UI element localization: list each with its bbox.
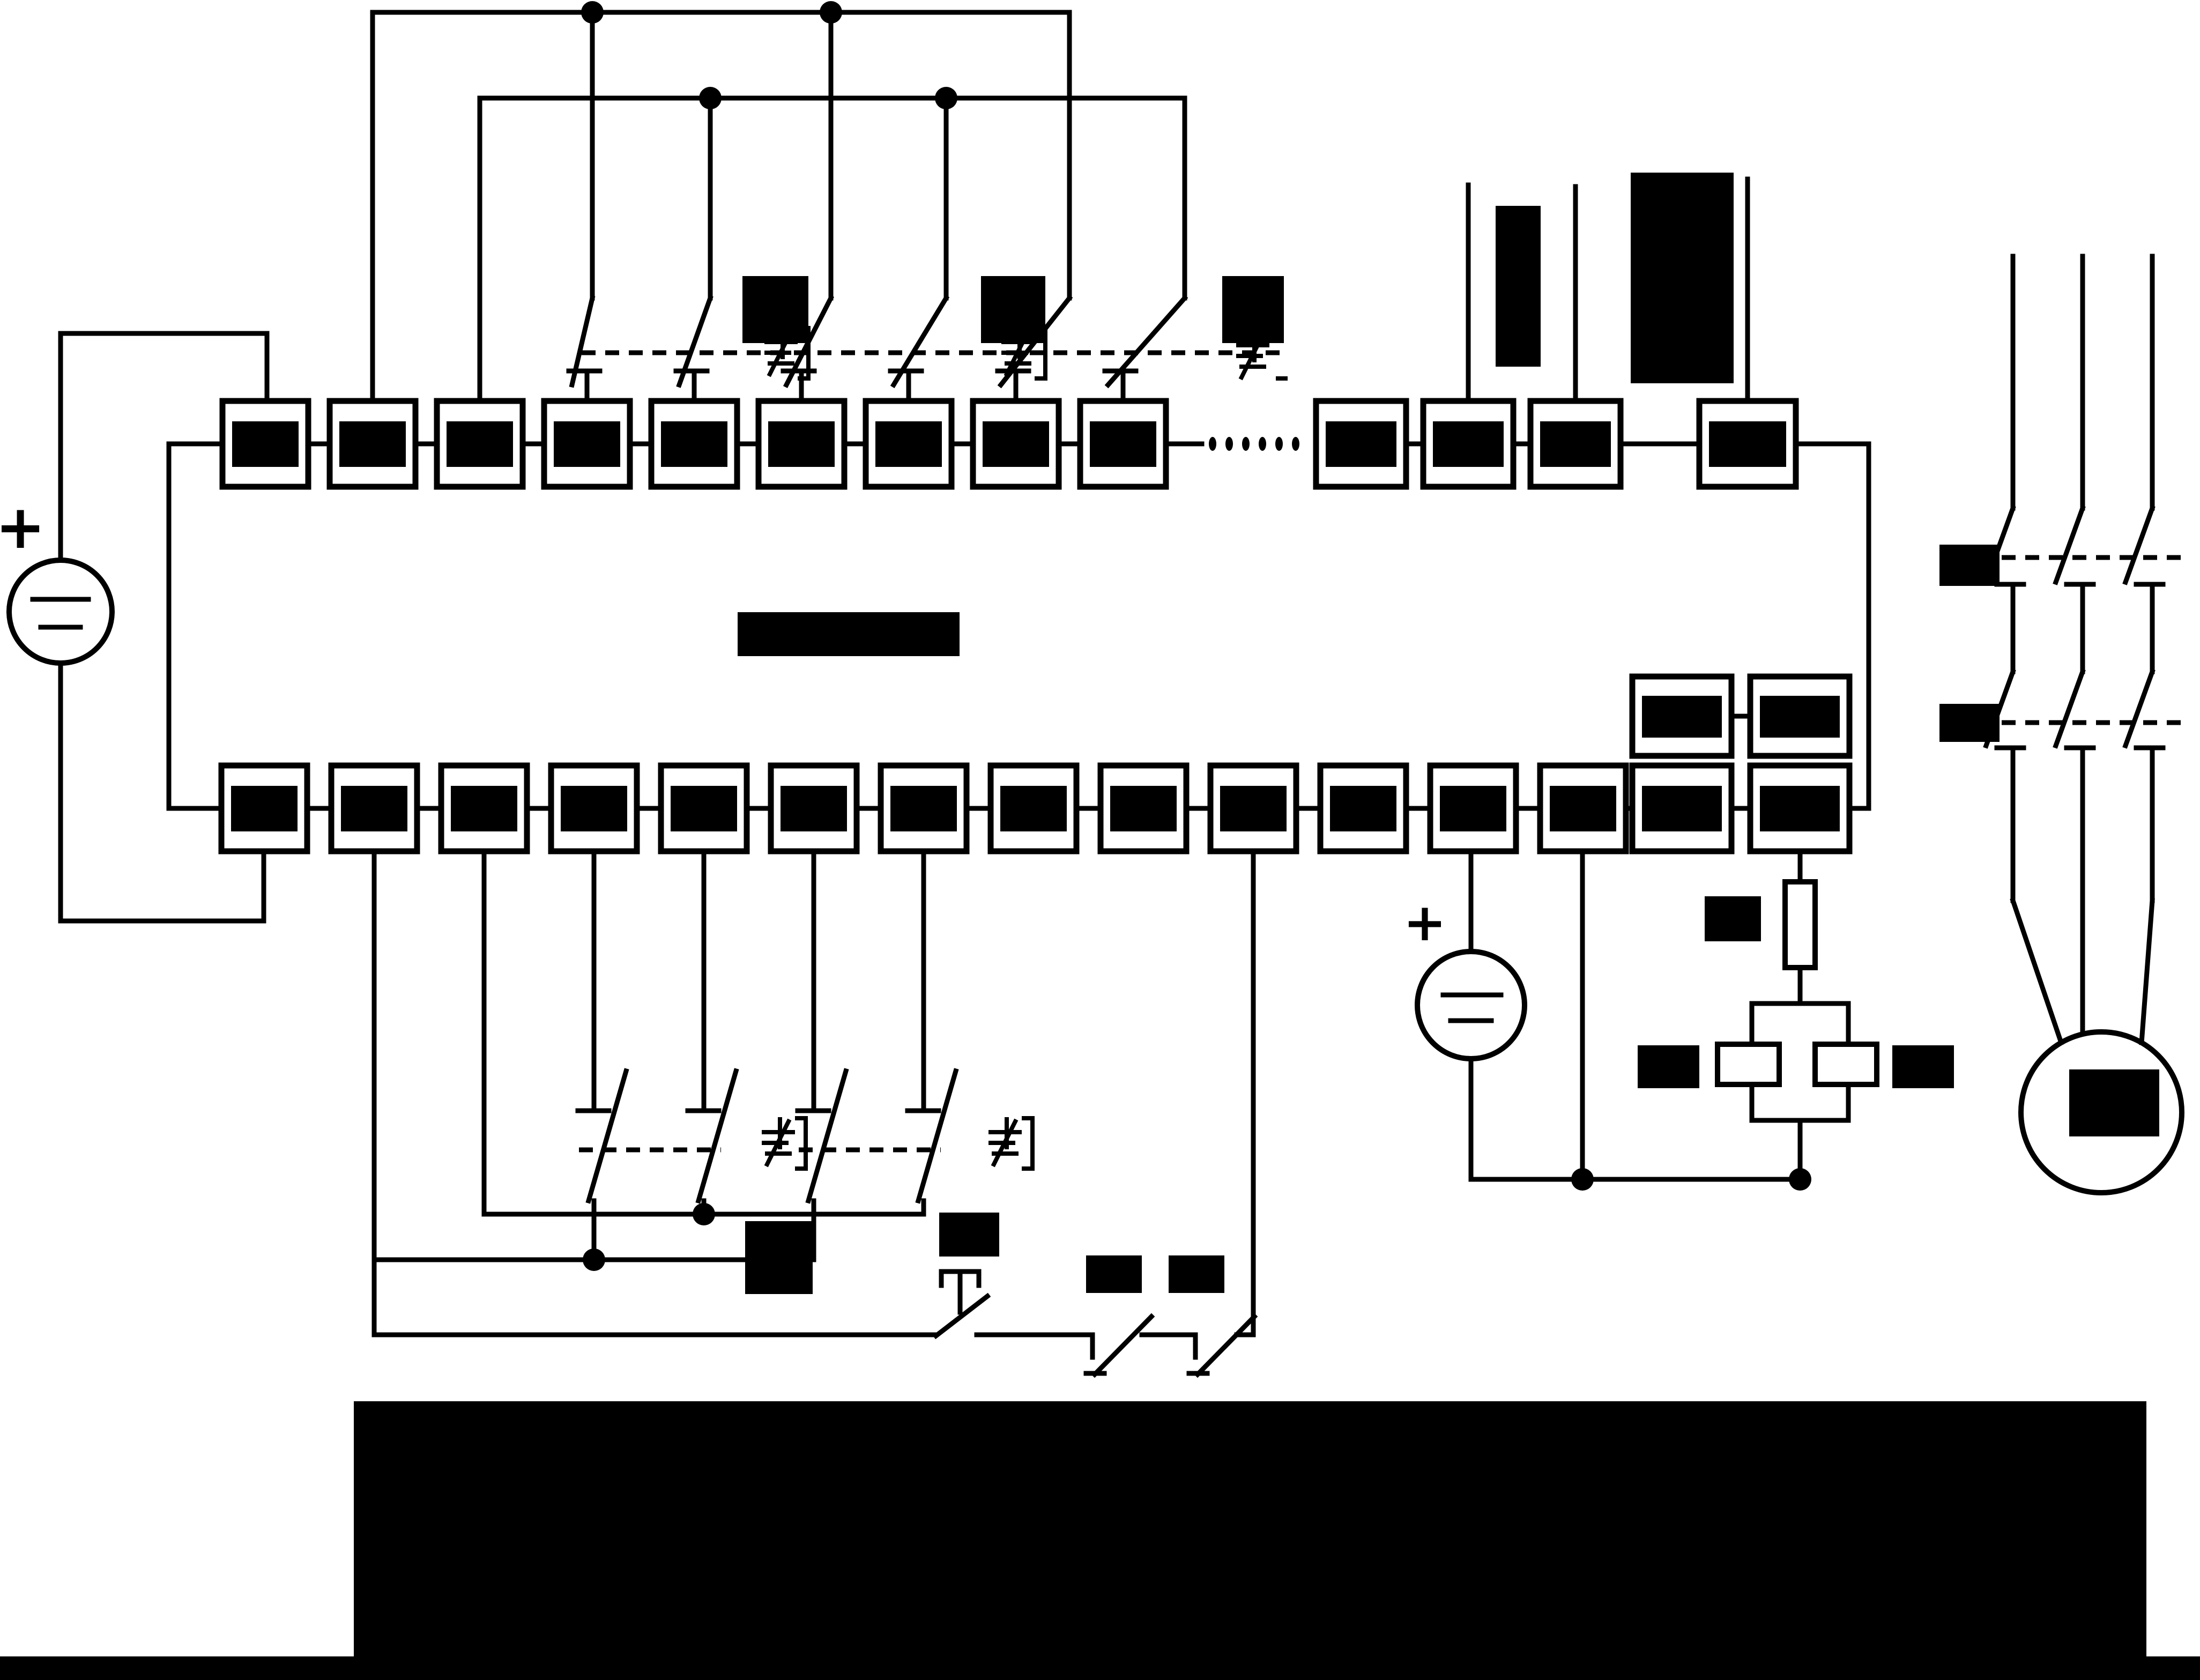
plc-model-label-redacted <box>738 612 960 656</box>
terminal-label-redacted <box>1440 786 1506 831</box>
module-bar-redacted <box>1631 173 1734 383</box>
terminal-label-redacted <box>781 786 847 831</box>
junction-dot <box>581 1 604 24</box>
contactor-contact <box>2125 508 2152 582</box>
coil-side-square <box>1718 1044 1779 1084</box>
diagram-canvas: ++ <box>0 0 2200 1680</box>
dc-source-1-plus-sign: + <box>0 493 46 562</box>
terminal-label-redacted <box>1642 786 1722 831</box>
terminal-label-redacted <box>983 421 1049 467</box>
terminal-label-redacted <box>1540 421 1611 467</box>
linkage-glyph <box>764 1118 806 1169</box>
terminal-label-redacted <box>875 421 942 467</box>
terminal-row-ellipsis-dot <box>1242 437 1250 451</box>
linkage-glyph <box>991 1118 1032 1169</box>
dc-source-2-plus-sign: + <box>1403 893 1446 953</box>
terminal-label-redacted <box>341 786 407 831</box>
junction-dot <box>820 1 842 24</box>
terminal-label-redacted <box>1326 421 1396 467</box>
terminal-row-ellipsis-dot <box>1292 437 1299 451</box>
motor-label-redacted <box>2069 1069 2159 1136</box>
series-contact <box>1095 1317 1151 1374</box>
terminal-label-redacted <box>1433 421 1504 467</box>
terminal-label-redacted <box>232 421 299 467</box>
dc-source-2-circle <box>1417 951 1525 1059</box>
terminal-label-redacted <box>1760 696 1840 738</box>
terminal-label-redacted <box>1642 696 1722 738</box>
terminal-row-ellipsis-dot <box>1259 437 1266 451</box>
coil-label-redacted <box>1638 1045 1699 1088</box>
terminal-label-redacted <box>339 421 406 467</box>
motor-lead <box>2013 901 2061 1043</box>
switch-pair-label-redacted <box>745 1221 813 1294</box>
plc-wiring-diagram: ++ <box>0 0 2200 1680</box>
input-switch-label-redacted <box>742 276 808 343</box>
coil-side-square <box>1815 1044 1877 1084</box>
contactor-contact <box>2125 672 2152 746</box>
contactor-label-redacted <box>1939 545 2000 586</box>
terminal-label-redacted <box>554 421 620 467</box>
terminal-label-redacted <box>1000 786 1067 831</box>
contactor-label-redacted <box>1939 704 2000 742</box>
terminal-label-redacted <box>661 421 727 467</box>
caption-block-redacted <box>354 1401 2146 1680</box>
contactor-contact <box>2056 672 2083 746</box>
series-contact-label-redacted <box>1086 1255 1142 1293</box>
push-button-label-redacted <box>939 1213 999 1257</box>
terminal-label-redacted <box>1550 786 1616 831</box>
terminal-label-redacted <box>1110 786 1177 831</box>
junction-dot <box>699 87 722 109</box>
junction-dot <box>1789 1168 1811 1191</box>
bottom-strip-redacted <box>0 1656 2200 1680</box>
motor-lead <box>2142 901 2152 1043</box>
junction-dot <box>1571 1168 1594 1191</box>
terminal-label-redacted <box>1709 421 1786 467</box>
junction-dot <box>935 87 957 109</box>
terminal-label-redacted <box>1090 421 1156 467</box>
contactor-contact <box>2056 508 2083 582</box>
input-switch-label-redacted <box>981 276 1045 343</box>
terminal-label-redacted <box>561 786 627 831</box>
coil-label-redacted <box>1892 1045 1954 1088</box>
series-contact <box>1198 1317 1254 1374</box>
terminal-label-redacted <box>671 786 737 831</box>
terminal-label-redacted <box>447 421 513 467</box>
terminal-label-redacted <box>1220 786 1287 831</box>
fuse-symbol <box>1785 882 1815 968</box>
junction-dot <box>693 1203 715 1225</box>
terminal-label-redacted <box>1760 786 1840 831</box>
dc-source-1-circle <box>9 560 112 663</box>
terminal-label-redacted <box>1330 786 1396 831</box>
terminal-row-ellipsis-dot <box>1275 437 1283 451</box>
terminal-row-ellipsis-dot <box>1225 437 1233 451</box>
terminal-label-redacted <box>768 421 835 467</box>
terminal-label-redacted <box>451 786 517 831</box>
terminal-label-redacted <box>890 786 957 831</box>
fuse-label-redacted <box>1705 896 1761 941</box>
terminal-label-redacted <box>231 786 298 831</box>
module-bar-redacted <box>1496 206 1541 367</box>
series-contact-label-redacted <box>1169 1255 1224 1293</box>
junction-dot <box>583 1248 605 1271</box>
terminal-row-ellipsis-dot <box>1209 437 1216 451</box>
